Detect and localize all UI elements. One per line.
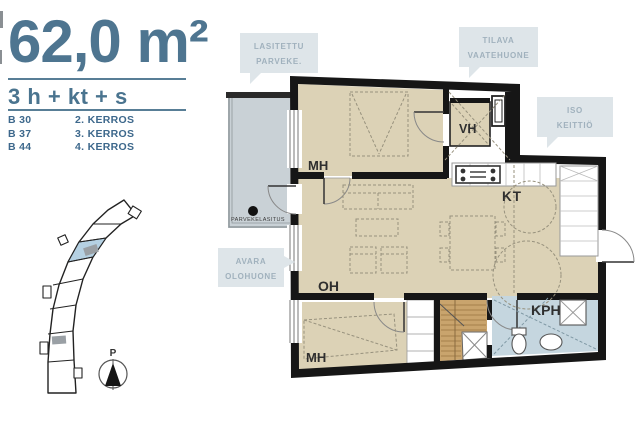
- callout-tail: [547, 137, 558, 148]
- room-label-kitchen: KT: [502, 189, 522, 204]
- room-label-bathroom: KPH: [531, 302, 561, 318]
- balcony-drain: [248, 206, 258, 216]
- room-label-bedroom1: MH: [308, 158, 328, 173]
- balcony-glazing-label: PARVEKELASITUS: [231, 217, 285, 223]
- callout-line: AVARA: [218, 254, 284, 269]
- sink: [540, 334, 562, 350]
- callout-big-kitchen: ISO KEITTIÖ: [537, 97, 613, 137]
- room-label-bedroom2: MH: [306, 350, 326, 365]
- callout-glazed-balcony: LASITETTU PARVEKE.: [240, 33, 318, 73]
- callout-line: PARVEKE.: [240, 54, 318, 69]
- callout-open-livingroom: AVARA OLOHUONE: [218, 248, 284, 287]
- north-arrow-triangle: [105, 363, 121, 386]
- balcony-top-wall: [226, 92, 292, 98]
- wardrobe: [407, 300, 434, 367]
- north-label: P: [110, 348, 117, 359]
- callout-line: TILAVA: [459, 33, 538, 48]
- sauna-heater: [462, 332, 487, 360]
- north-arrow: P: [99, 348, 127, 390]
- balcony: PARVEKELASITUS: [226, 92, 292, 228]
- callout-tail: [469, 67, 480, 78]
- floor-plan-svg: P PARVEKELASITUS: [0, 0, 640, 430]
- callout-spacious-closet: TILAVA VAATEHUONE: [459, 27, 538, 67]
- windows: [287, 110, 302, 343]
- callout-tail: [284, 256, 295, 268]
- callout-line: ISO: [537, 103, 613, 118]
- washing-machine: [560, 300, 586, 325]
- callout-line: KEITTIÖ: [537, 118, 613, 133]
- window: [287, 300, 302, 343]
- stove: [456, 166, 500, 183]
- electrical-cabinet: [492, 96, 505, 126]
- callout-tail: [250, 73, 261, 84]
- site-plan-stair-core: [52, 336, 67, 345]
- window: [287, 110, 302, 168]
- page: { "panel": { "area": "62,0 m²", "layout"…: [0, 0, 640, 430]
- callout-line: LASITETTU: [240, 39, 318, 54]
- callout-line: VAATEHUONE: [459, 48, 538, 63]
- room-label-closet: VH: [459, 122, 476, 136]
- room-label-living: OH: [318, 278, 339, 294]
- callout-line: OLOHUONE: [218, 269, 284, 284]
- site-plan: [40, 200, 141, 393]
